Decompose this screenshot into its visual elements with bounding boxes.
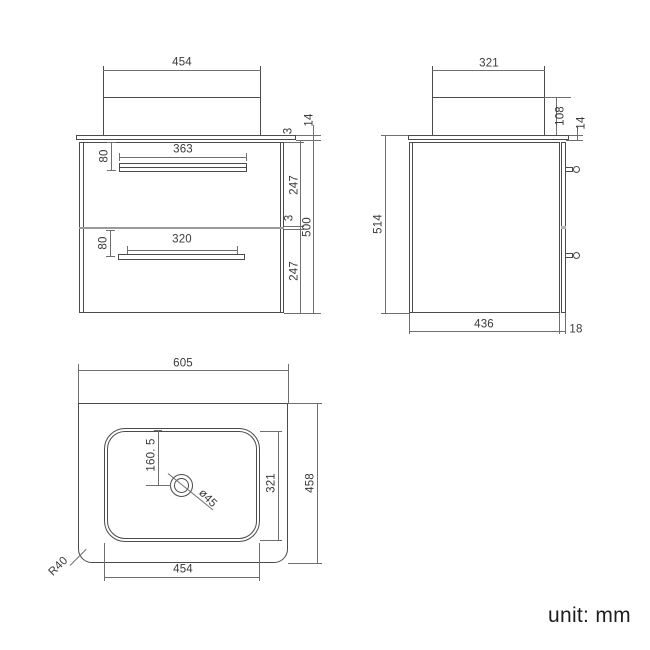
- dim-label-top-counter-depth: 458: [305, 473, 317, 493]
- dim-label-top-basin-width: 454: [173, 564, 193, 576]
- dim-label-side-total-height: 514: [373, 214, 385, 234]
- dim-label-front-drawer-height-bottom: 247: [289, 261, 301, 281]
- unit-note: unit: mm: [548, 604, 628, 628]
- front-view: [58, 55, 326, 320]
- dim-label-side-counter-thickness: 14: [576, 116, 588, 129]
- dim-label-side-front-projection: 18: [569, 324, 582, 336]
- dim-label-top-basin-depth: 321: [266, 473, 278, 493]
- dim-label-front-handle-offset-bottom: 80: [98, 236, 110, 249]
- dim-label-front-cabinet-height: 500: [302, 217, 314, 237]
- technical-drawing-canvas: 454 80 363 3 14 247 3 500 247 80 320 321…: [0, 0, 650, 650]
- dim-label-front-gap-mid: 3: [284, 215, 296, 222]
- dim-label-top-counter-width: 605: [173, 358, 193, 370]
- side-view: [370, 55, 595, 340]
- dim-label-front-drawer-height-top: 247: [289, 175, 301, 195]
- dim-label-side-basin-height: 108: [555, 106, 567, 126]
- dim-label-front-handle-offset-top: 80: [99, 149, 111, 162]
- dim-label-top-drain-offset: 160. 5: [146, 438, 158, 471]
- dim-label-side-basin-depth: 321: [479, 58, 499, 70]
- dim-label-side-cabinet-depth: 436: [474, 319, 494, 331]
- dim-label-front-reveal-top: 3: [283, 128, 295, 135]
- dim-label-front-handle-width-bottom: 320: [172, 234, 192, 246]
- dim-label-front-handle-width-top: 363: [173, 144, 193, 156]
- top-view: [45, 355, 330, 585]
- dim-label-front-basin-width: 454: [172, 57, 192, 69]
- dim-label-front-counter-thickness: 14: [304, 113, 316, 126]
